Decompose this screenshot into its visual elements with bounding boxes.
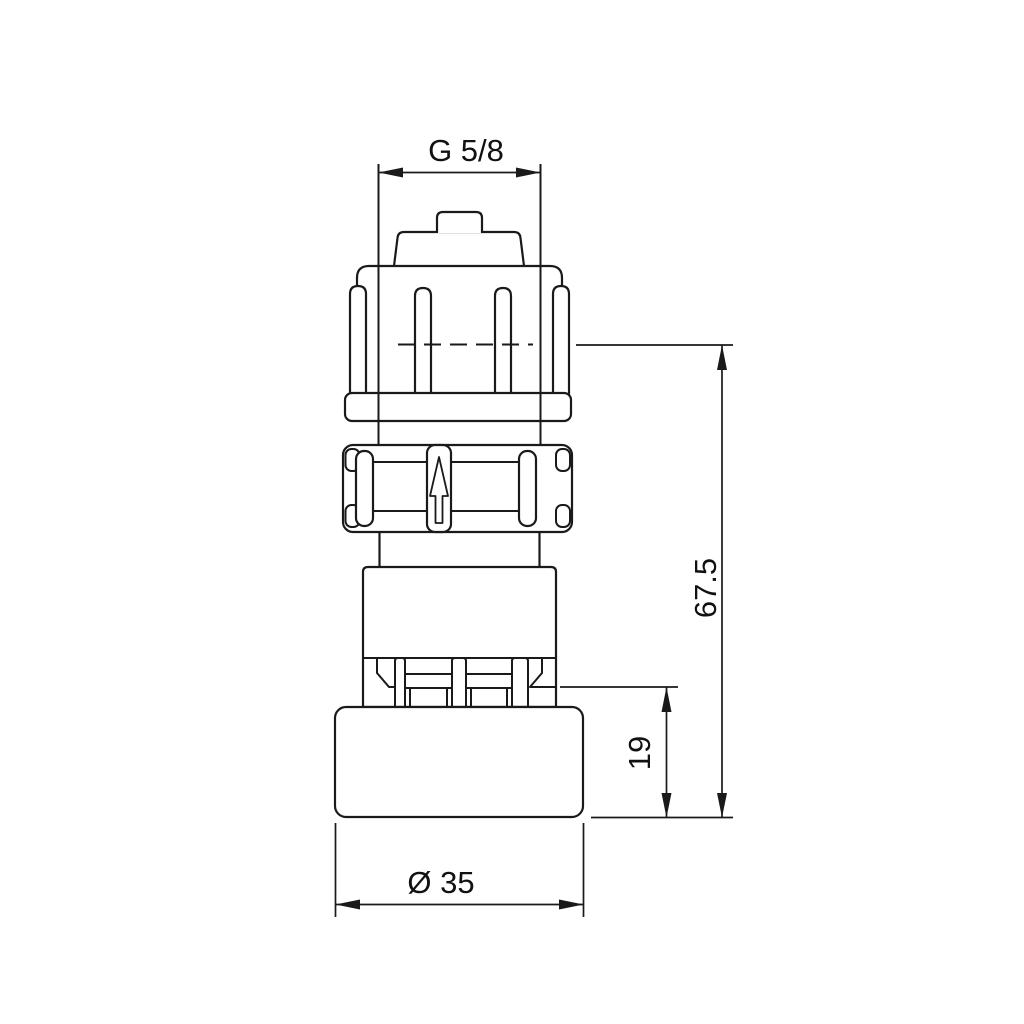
knurled-cap [357, 266, 562, 395]
dimension-label-overall-height: 67.5 [688, 558, 723, 618]
cap-bevel [394, 232, 524, 266]
technical-drawing: G 5/8 67.5 19 Ø 35 [0, 0, 1024, 1024]
lock-ring-body [343, 445, 572, 532]
dimension-label-thread: G 5/8 [428, 133, 504, 168]
dimension-label-lower-height: 19 [622, 736, 657, 770]
dimension-label-diameter: Ø 35 [407, 865, 474, 900]
ring-bar-right [519, 451, 536, 526]
ring-bar-left [356, 451, 373, 526]
cap-side-rib-right [553, 286, 569, 396]
cap-side-rib-left [350, 286, 366, 396]
lock-ring [343, 445, 572, 532]
top-button [437, 212, 482, 233]
base-cylinder [335, 707, 583, 817]
